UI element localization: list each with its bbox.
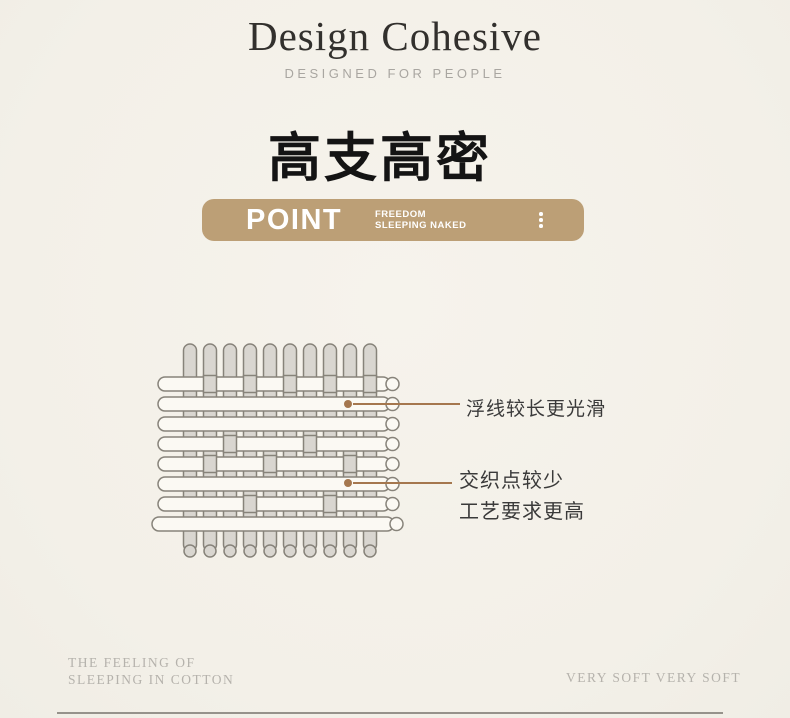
annotation-line-1 [353,403,460,405]
brand-tagline: DESIGNED FOR PEOPLE [0,66,790,81]
section-title: 高支高密 [0,116,775,192]
footer-divider [57,712,723,714]
point-sub-line2: SLEEPING NAKED [375,220,466,232]
point-sub-line1: FREEDOM [375,209,466,221]
point-banner: POINT FREEDOM SLEEPING NAKED [202,199,584,241]
footer-left-line1: THE FEELING OF [68,655,234,672]
footer-right-caption: VERY SOFT VERY SOFT [566,670,741,686]
brand-title: Design Cohesive [0,12,790,60]
annotation-label-2-line2: 工艺要求更高 [459,497,585,528]
annotation-label-1: 浮线较长更光滑 [466,394,606,421]
annotation-label-2-line1: 交织点较少 [459,466,585,497]
annotation-dot-2 [344,479,352,487]
weave-diagram [148,333,414,573]
annotation-line-2 [353,482,452,484]
footer-left-caption: THE FEELING OF SLEEPING IN COTTON [68,655,234,688]
vertical-ellipsis-icon [537,199,545,241]
annotation-dot-1 [344,400,352,408]
product-detail-page: Design Cohesive DESIGNED FOR PEOPLE 高支高密… [0,0,790,718]
footer-left-line2: SLEEPING IN COTTON [68,672,234,689]
annotation-label-2: 交织点较少 工艺要求更高 [459,466,585,528]
point-label: POINT [246,199,342,241]
point-sub-tagline: FREEDOM SLEEPING NAKED [375,199,466,241]
